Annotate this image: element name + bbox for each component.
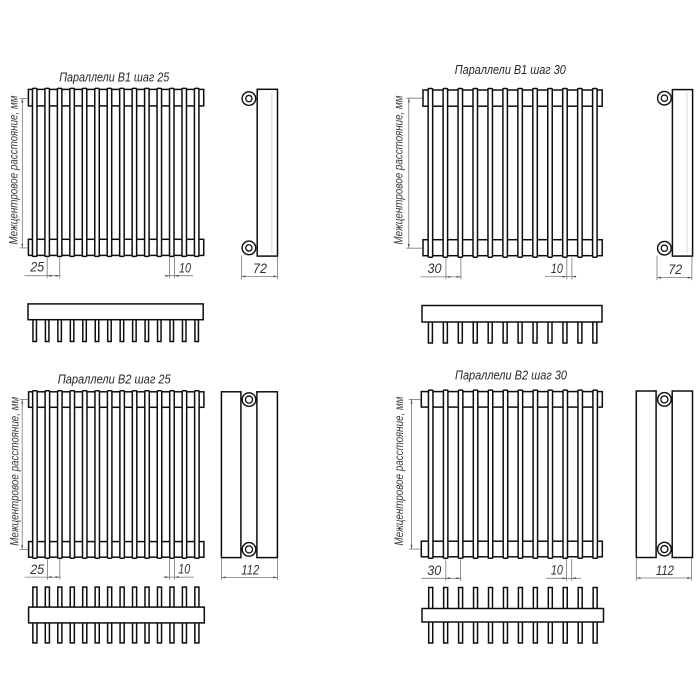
svg-text:10: 10 [178,561,190,577]
svg-text:72: 72 [668,261,682,277]
svg-text:112: 112 [241,561,259,577]
svg-text:10: 10 [551,260,563,276]
svg-text:Параллели В1 шаг 25: Параллели В1 шаг 25 [59,70,169,84]
svg-text:25: 25 [29,561,44,577]
svg-text:Межцентровое расстояние, мм: Межцентровое расстояние, мм [392,397,406,546]
svg-text:30: 30 [428,260,442,276]
svg-text:Параллели В2 шаг 25: Параллели В2 шаг 25 [58,372,171,386]
svg-text:72: 72 [253,260,267,276]
svg-text:10: 10 [179,260,191,276]
svg-text:25: 25 [29,259,44,275]
svg-text:112: 112 [656,562,674,578]
svg-text:Параллели В2 шаг 30: Параллели В2 шаг 30 [455,368,567,382]
svg-text:30: 30 [427,562,441,578]
svg-text:Межцентровое расстояние, мм: Межцентровое расстояние, мм [7,397,21,546]
svg-text:10: 10 [551,561,563,577]
svg-text:Параллели В1 шаг 30: Параллели В1 шаг 30 [455,63,566,77]
svg-text:Межцентровое расстояние, мм: Межцентровое расстояние, мм [392,96,406,245]
svg-text:Межцентровое расстояние, мм: Межцентровое расстояние, мм [6,96,20,245]
